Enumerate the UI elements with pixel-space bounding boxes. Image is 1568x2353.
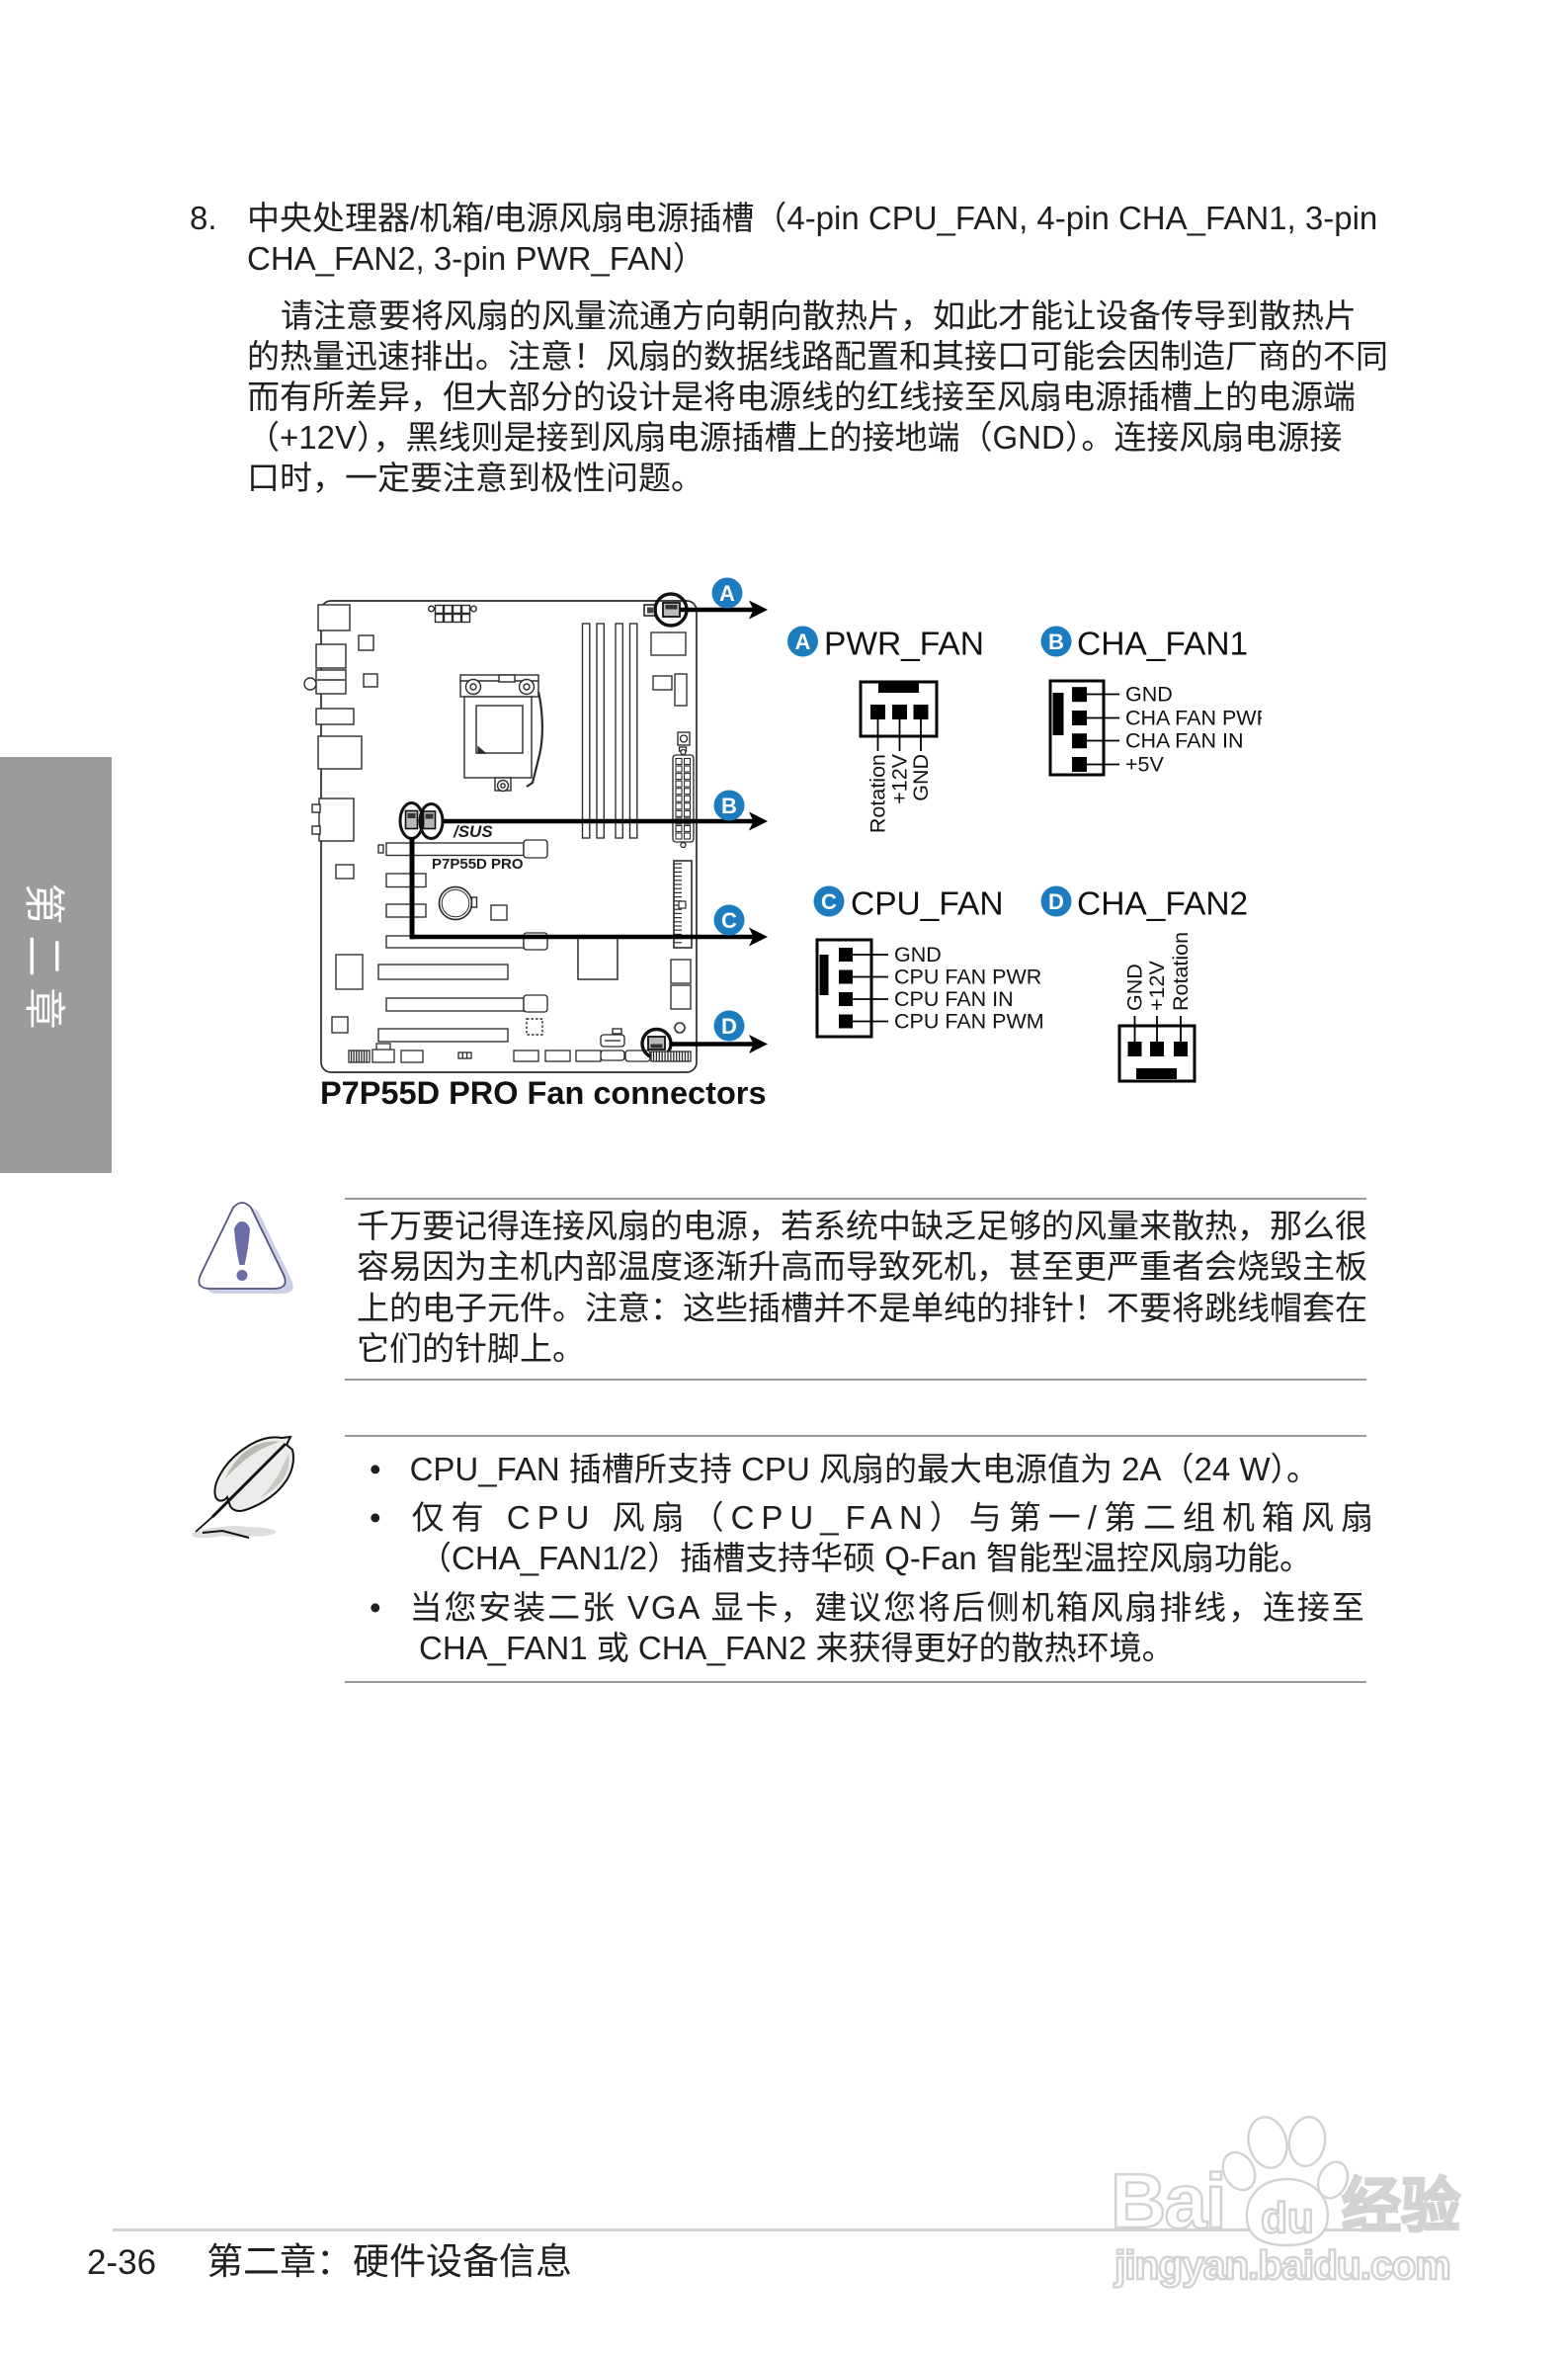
svg-text:P7P55D PRO Fan connectors: P7P55D PRO Fan connectors	[320, 1075, 767, 1111]
svg-text:D: D	[1048, 889, 1064, 914]
svg-text:C: C	[821, 889, 837, 914]
svg-text:jingyan.baidu.com: jingyan.baidu.com	[1114, 2242, 1450, 2288]
svg-text:经验: 经验	[1342, 2158, 1460, 2244]
svg-text:CPU FAN PWM: CPU FAN PWM	[894, 1010, 1044, 1034]
svg-text:D: D	[721, 1014, 737, 1039]
svg-text:CPU FAN PWR: CPU FAN PWR	[894, 966, 1041, 989]
svg-text:GND: GND	[1125, 683, 1173, 707]
svg-text:Rotation: Rotation	[1169, 932, 1193, 1011]
svg-text:P7P55D PRO: P7P55D PRO	[432, 856, 524, 873]
svg-text:Rotation: Rotation	[867, 754, 890, 833]
svg-text:PWR_FAN: PWR_FAN	[824, 627, 984, 663]
svg-text:GND: GND	[894, 943, 942, 966]
svg-text:CHA FAN IN: CHA FAN IN	[1125, 729, 1243, 753]
svg-text:GND: GND	[1123, 964, 1147, 1011]
svg-text:/SUS: /SUS	[453, 822, 493, 841]
svg-text:Bai: Bai	[1111, 2157, 1224, 2244]
svg-text:+12V: +12V	[888, 753, 912, 803]
svg-text:+12V: +12V	[1145, 961, 1169, 1011]
svg-text:+5V: +5V	[1125, 753, 1165, 777]
svg-text:CHA_FAN1: CHA_FAN1	[1077, 627, 1248, 663]
svg-text:A: A	[719, 581, 735, 606]
svg-text:du: du	[1261, 2194, 1314, 2242]
svg-text:GND: GND	[909, 754, 933, 801]
svg-text:CHA FAN PWR: CHA FAN PWR	[1125, 707, 1272, 730]
svg-text:C: C	[721, 908, 737, 933]
svg-text:CHA_FAN2: CHA_FAN2	[1077, 886, 1248, 923]
svg-text:B: B	[721, 794, 737, 818]
svg-text:A: A	[795, 630, 811, 654]
svg-text:B: B	[1048, 630, 1064, 654]
svg-text:CPU FAN IN: CPU FAN IN	[894, 987, 1014, 1011]
svg-text:CPU_FAN: CPU_FAN	[851, 886, 1004, 923]
